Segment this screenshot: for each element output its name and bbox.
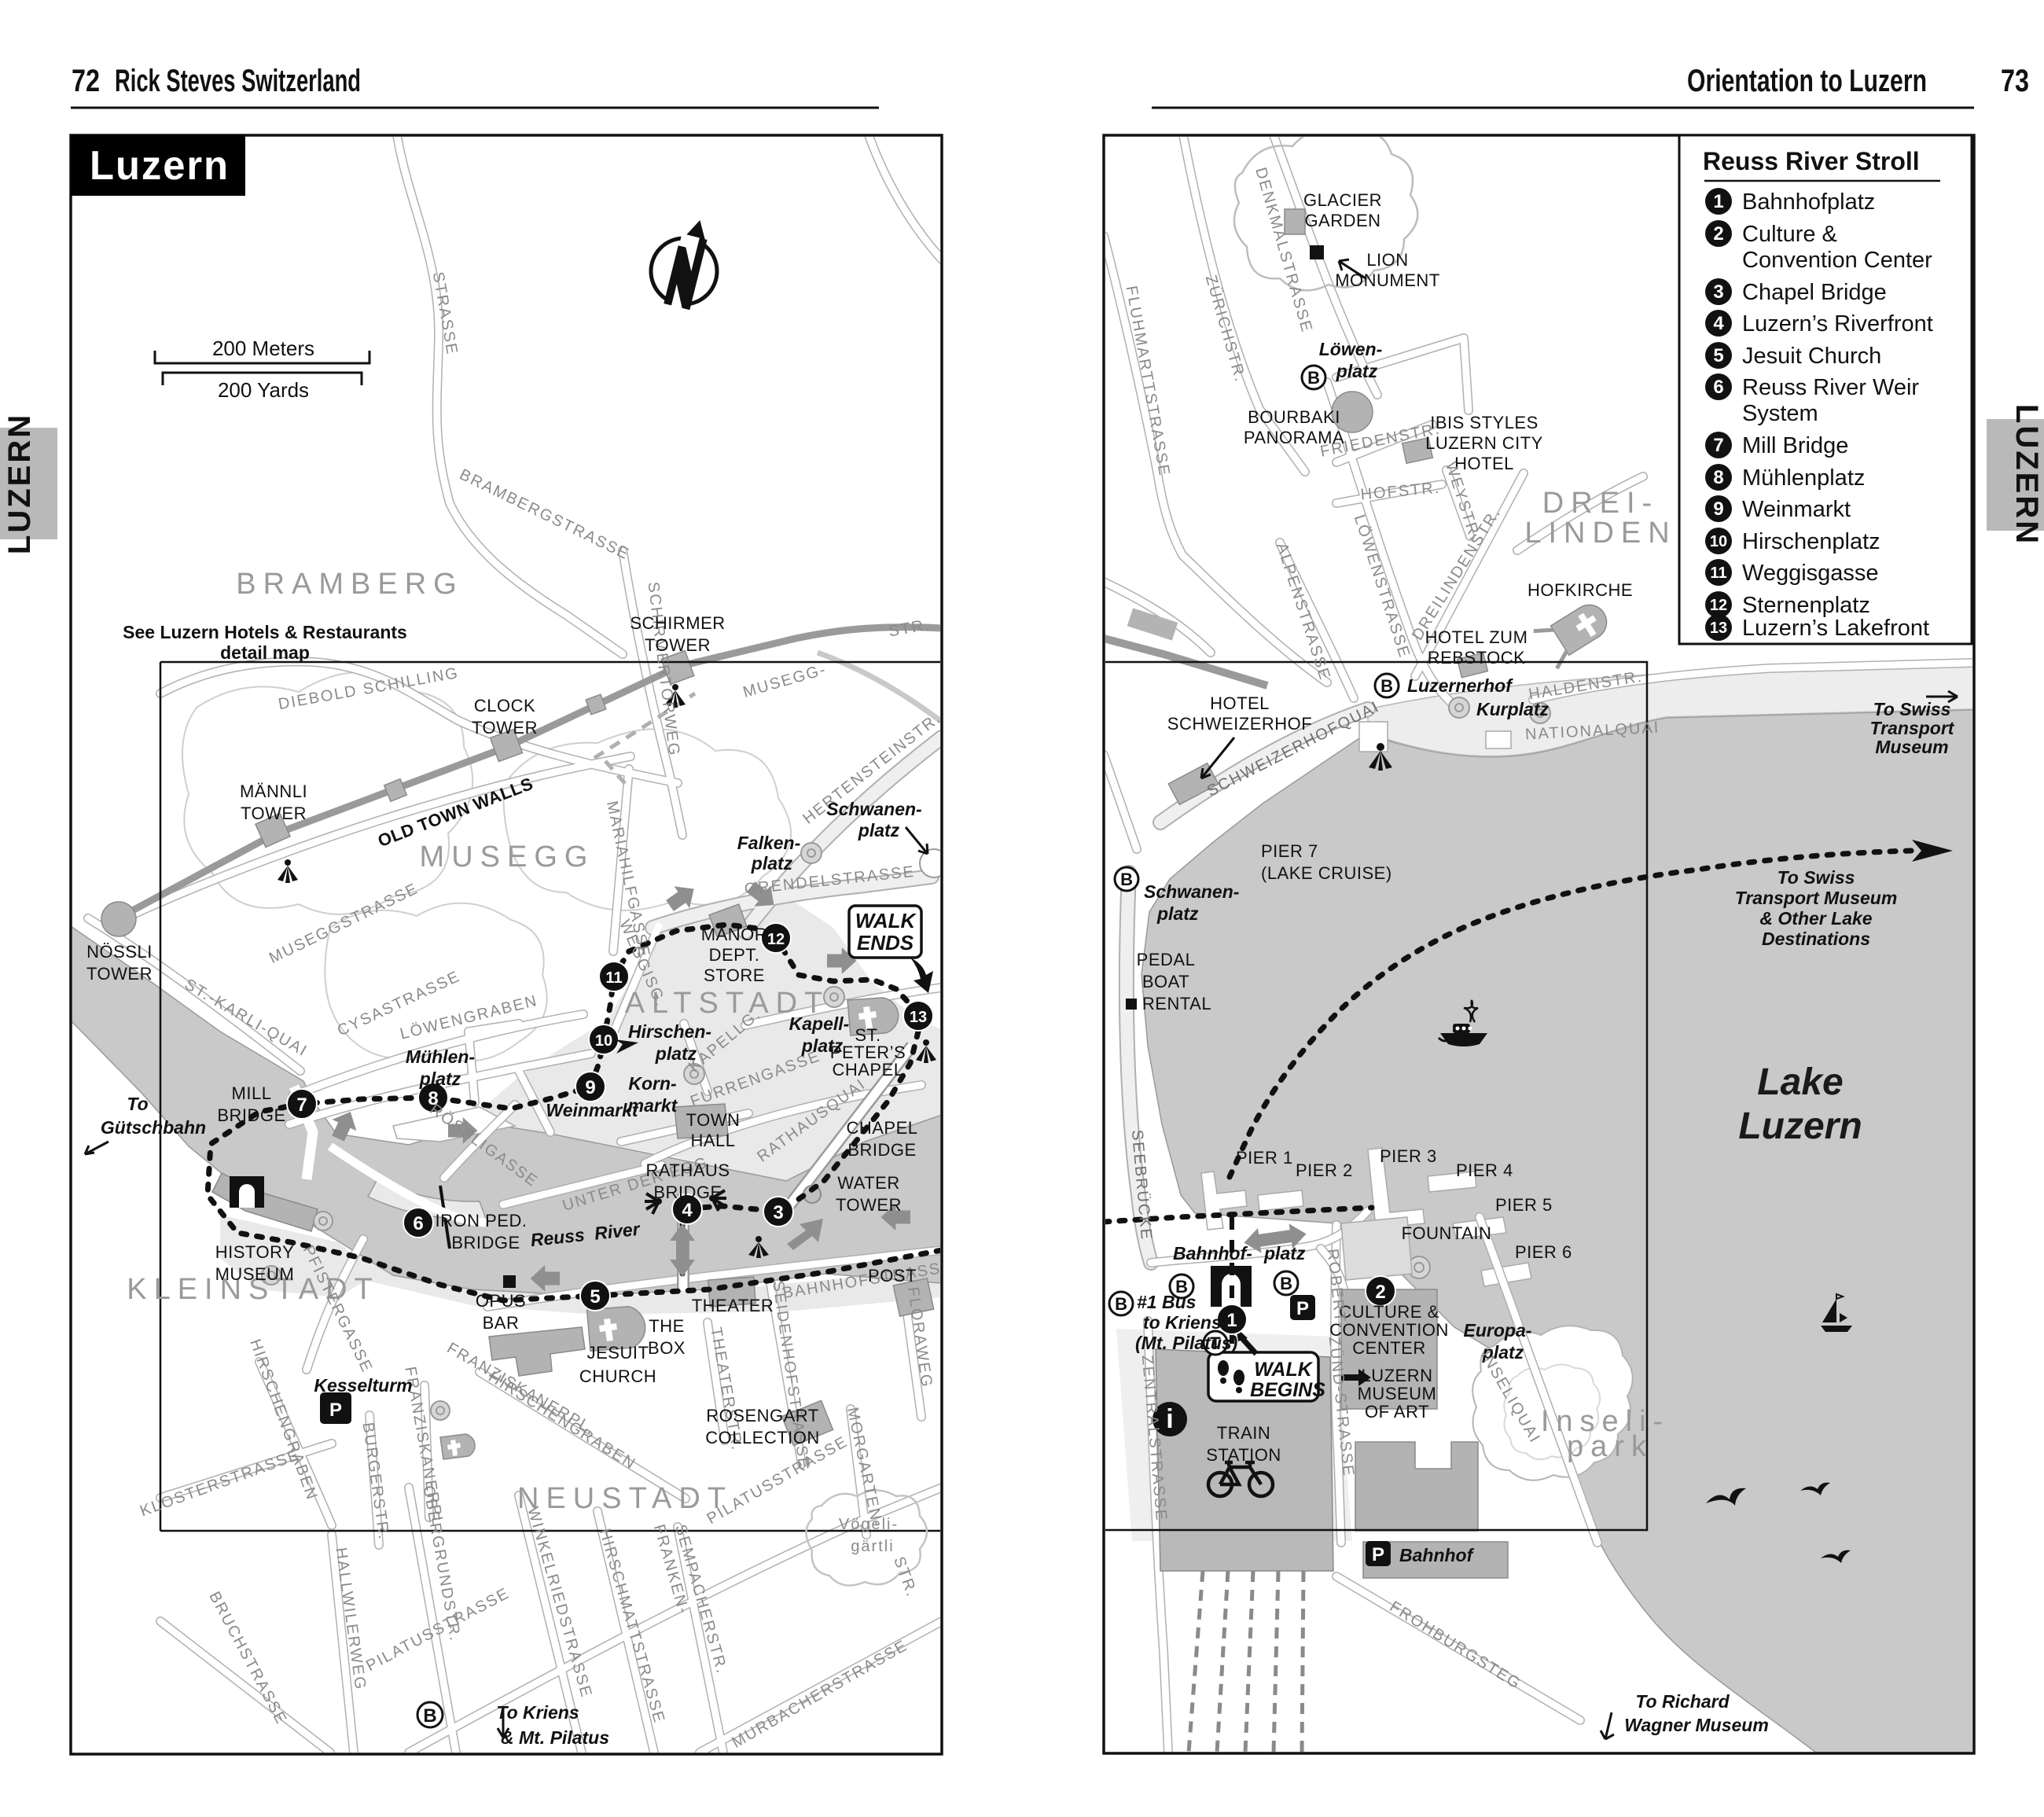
svg-text:Luzern’s Riverfront: Luzern’s Riverfront (1742, 311, 1933, 337)
svg-text:TOWN: TOWN (686, 1110, 741, 1130)
svg-text:Lake: Lake (1757, 1061, 1843, 1103)
svg-text:72: 72 (72, 64, 100, 98)
svg-text:System: System (1742, 401, 1818, 426)
svg-text:Luzern: Luzern (1738, 1105, 1862, 1147)
svg-text:TOWER: TOWER (86, 964, 153, 984)
svg-text:SCHIRMER: SCHIRMER (630, 613, 725, 633)
svg-text:Hirschenplatz: Hirschenplatz (1742, 529, 1880, 554)
svg-text:TOWER: TOWER (836, 1195, 902, 1215)
svg-text:LUZERN: LUZERN (2009, 404, 2044, 546)
svg-text:HOFKIRCHE: HOFKIRCHE (1527, 580, 1633, 600)
svg-text:Kurplatz: Kurplatz (1476, 699, 1550, 719)
svg-text:7: 7 (1713, 435, 1723, 456)
svg-text:CULTURE &: CULTURE & (1339, 1302, 1439, 1322)
svg-text:MANOR: MANOR (701, 925, 767, 944)
svg-text:9: 9 (585, 1077, 595, 1098)
svg-text:B: B (1280, 1274, 1292, 1293)
svg-text:CHAPEL: CHAPEL (832, 1060, 903, 1080)
svg-text:CENTER: CENTER (1352, 1338, 1425, 1358)
svg-text:Korn-: Korn- (628, 1073, 676, 1094)
svg-text:Reuss River Stroll: Reuss River Stroll (1703, 147, 1920, 175)
svg-text:platz: platz (655, 1043, 697, 1064)
svg-text:Museum: Museum (1875, 737, 1948, 757)
svg-text:THEATER: THEATER (692, 1296, 774, 1315)
svg-text:STORE: STORE (704, 966, 765, 985)
svg-text:MUSEUM: MUSEUM (1358, 1384, 1437, 1403)
svg-text:Orientation to Luzern: Orientation to Luzern (1687, 64, 1927, 98)
svg-text:Luzern: Luzern (90, 143, 230, 189)
svg-text:TOWER: TOWER (472, 718, 538, 737)
svg-text:SCHWEIZERHOF: SCHWEIZERHOF (1167, 714, 1312, 734)
svg-text:BRIDGE: BRIDGE (217, 1105, 285, 1125)
svg-text:Transport: Transport (1870, 718, 1955, 738)
svg-text:LUZERN: LUZERN (2, 413, 37, 554)
svg-text:JESUIT: JESUIT (587, 1343, 649, 1363)
svg-text:OF ART: OF ART (1365, 1402, 1429, 1422)
svg-text:TRAIN: TRAIN (1217, 1423, 1271, 1443)
svg-text:Culture &: Culture & (1742, 222, 1837, 247)
svg-text:BOAT: BOAT (1142, 972, 1189, 991)
svg-text:2: 2 (1375, 1282, 1385, 1303)
svg-text:3: 3 (773, 1202, 783, 1223)
svg-text:LION: LION (1366, 250, 1408, 270)
svg-text:Rick Steves Switzerland: Rick Steves Switzerland (115, 64, 361, 98)
svg-text:P: P (329, 1400, 342, 1421)
svg-text:(Mt. Pilatus): (Mt. Pilatus) (1135, 1333, 1237, 1353)
svg-text:13: 13 (1710, 620, 1727, 637)
svg-text:BOX: BOX (648, 1338, 686, 1358)
svg-text:Mühlen-: Mühlen- (406, 1046, 475, 1067)
svg-text:Destinations: Destinations (1762, 929, 1870, 949)
svg-text:To Kriens: To Kriens (496, 1702, 579, 1723)
svg-text:FOUNTAIN: FOUNTAIN (1402, 1223, 1492, 1243)
svg-text:10: 10 (595, 1032, 612, 1050)
svg-text:IBIS STYLES: IBIS STYLES (1430, 413, 1539, 432)
svg-text:PIER 4: PIER 4 (1456, 1160, 1513, 1180)
svg-text:RENTAL: RENTAL (1142, 994, 1211, 1013)
svg-text:platz: platz (751, 853, 793, 874)
svg-text:to Kriens: to Kriens (1143, 1312, 1222, 1333)
svg-text:11: 11 (1710, 565, 1726, 582)
svg-text:PIER 7: PIER 7 (1261, 841, 1318, 861)
svg-text:200 Yards: 200 Yards (218, 378, 309, 402)
svg-text:TOWER: TOWER (241, 804, 307, 823)
svg-text:(LAKE CRUISE): (LAKE CRUISE) (1261, 863, 1392, 883)
svg-text:To Richard: To Richard (1635, 1691, 1730, 1712)
svg-text:ROSENGART: ROSENGART (706, 1406, 818, 1425)
svg-text:4: 4 (1713, 313, 1724, 334)
svg-text:BRIDGE: BRIDGE (847, 1140, 916, 1160)
svg-text:Vögeli-: Vögeli- (839, 1516, 899, 1533)
svg-text:6: 6 (1713, 377, 1723, 398)
svg-text:detail map: detail map (220, 642, 310, 663)
svg-text:Gütschbahn: Gütschbahn (101, 1117, 206, 1138)
svg-text:NÖSSLI: NÖSSLI (86, 942, 153, 962)
svg-text:BOURBAKI: BOURBAKI (1248, 407, 1340, 427)
svg-text:Convention Center: Convention Center (1742, 248, 1932, 273)
svg-text:platz: platz (1263, 1243, 1306, 1263)
svg-text:WALK: WALK (1254, 1359, 1314, 1381)
svg-text:2: 2 (1713, 223, 1723, 245)
svg-text:i: i (1166, 1404, 1173, 1434)
svg-text:6: 6 (413, 1213, 423, 1234)
svg-text:platz: platz (1156, 903, 1199, 924)
svg-text:TOWER: TOWER (645, 635, 711, 655)
svg-text:12: 12 (1710, 597, 1727, 614)
svg-text:THE: THE (649, 1316, 685, 1336)
svg-text:PIER 3: PIER 3 (1380, 1146, 1437, 1166)
svg-text:WATER: WATER (837, 1173, 900, 1193)
svg-text:DEPT.: DEPT. (709, 945, 760, 965)
svg-text:park: park (1567, 1430, 1653, 1463)
svg-text:& Other Lake: & Other Lake (1759, 908, 1872, 929)
svg-text:RATHAUS: RATHAUS (646, 1160, 730, 1180)
svg-text:P: P (1372, 1544, 1384, 1565)
svg-text:BRAMBERG: BRAMBERG (236, 568, 463, 601)
svg-text:13: 13 (910, 1009, 927, 1026)
svg-text:LUZERN: LUZERN (1361, 1366, 1432, 1385)
svg-text:5: 5 (590, 1286, 600, 1308)
svg-text:7: 7 (296, 1094, 307, 1116)
svg-text:Kapell-: Kapell- (789, 1013, 850, 1034)
svg-text:Chapel Bridge: Chapel Bridge (1742, 280, 1887, 305)
svg-text:MONUMENT: MONUMENT (1335, 270, 1440, 290)
svg-text:Reuss River Weir: Reuss River Weir (1742, 375, 1919, 400)
svg-text:HALL: HALL (690, 1131, 735, 1150)
svg-text:LUZERN CITY: LUZERN CITY (1425, 433, 1543, 453)
svg-text:HOTEL: HOTEL (1454, 454, 1514, 473)
svg-text:Mühlenplatz: Mühlenplatz (1742, 465, 1865, 491)
svg-text:8: 8 (1713, 467, 1723, 488)
svg-text:B: B (1307, 368, 1320, 388)
svg-text:POST: POST (868, 1266, 917, 1286)
svg-text:Weinmarkt: Weinmarkt (546, 1100, 639, 1120)
svg-text:MÄNNLI: MÄNNLI (240, 782, 307, 801)
svg-text:OPUS: OPUS (476, 1291, 526, 1311)
svg-text:NEUSTADT: NEUSTADT (517, 1482, 733, 1515)
svg-text:BRIDGE: BRIDGE (451, 1233, 520, 1252)
svg-text:HOTEL: HOTEL (1210, 693, 1270, 713)
svg-text:#1 Bus: #1 Bus (1137, 1292, 1196, 1312)
svg-text:B: B (423, 1705, 436, 1727)
svg-text:PEDAL: PEDAL (1137, 950, 1196, 969)
svg-text:Europa-: Europa- (1464, 1320, 1532, 1341)
svg-text:platz: platz (801, 1035, 844, 1056)
svg-text:Kesselturm: Kesselturm (314, 1375, 412, 1396)
svg-text:gärtli: gärtli (851, 1538, 894, 1555)
svg-text:PIER 2: PIER 2 (1296, 1160, 1353, 1180)
svg-text:Bahnhof-: Bahnhof- (1173, 1243, 1252, 1263)
svg-text:Jesuit Church: Jesuit Church (1742, 344, 1881, 369)
svg-text:Weggisgasse: Weggisgasse (1742, 561, 1879, 586)
svg-text:PIER 6: PIER 6 (1515, 1242, 1572, 1262)
svg-text:REBSTOCK: REBSTOCK (1428, 648, 1526, 668)
svg-text:Schwanen-: Schwanen- (1144, 881, 1239, 902)
svg-text:200 Meters: 200 Meters (212, 337, 314, 360)
svg-text:11: 11 (605, 969, 622, 987)
svg-text:B: B (1380, 676, 1393, 696)
svg-text:ENDS: ENDS (857, 931, 914, 954)
svg-text:Luzern’s Lakefront: Luzern’s Lakefront (1742, 616, 1929, 641)
svg-text:Transport Museum: Transport Museum (1735, 888, 1898, 908)
svg-text:BAR: BAR (483, 1313, 520, 1333)
svg-text:See Luzern Hotels & Restaurant: See Luzern Hotels & Restaurants (123, 622, 407, 642)
svg-text:MILL: MILL (232, 1083, 272, 1103)
svg-text:& Mt. Pilatus: & Mt. Pilatus (501, 1727, 609, 1748)
svg-text:BRIDGE: BRIDGE (653, 1183, 722, 1202)
svg-text:Schwanen-: Schwanen- (826, 799, 921, 819)
svg-text:P: P (1296, 1298, 1309, 1319)
svg-text:PIER 1: PIER 1 (1236, 1148, 1293, 1168)
svg-text:LINDEN: LINDEN (1524, 517, 1676, 550)
svg-text:IRON PED.: IRON PED. (436, 1211, 528, 1230)
svg-text:12: 12 (767, 931, 785, 948)
svg-text:Hirschen-: Hirschen- (628, 1021, 711, 1042)
svg-text:Bahnhofplatz: Bahnhofplatz (1742, 189, 1875, 215)
svg-text:B: B (1115, 1294, 1127, 1314)
svg-text:platz: platz (858, 820, 900, 840)
svg-text:platz: platz (419, 1068, 461, 1089)
svg-text:4: 4 (682, 1200, 693, 1221)
svg-text:Weinmarkt: Weinmarkt (1742, 497, 1851, 522)
svg-text:73: 73 (2001, 64, 2029, 98)
svg-text:1: 1 (1713, 191, 1723, 212)
svg-text:platz: platz (1336, 361, 1378, 381)
svg-text:9: 9 (1713, 498, 1723, 520)
svg-text:HISTORY: HISTORY (215, 1242, 295, 1262)
svg-text:Luzernerhof: Luzernerhof (1407, 675, 1513, 696)
svg-text:10: 10 (1710, 533, 1727, 550)
svg-text:GLACIER: GLACIER (1303, 190, 1382, 210)
svg-text:To Swiss: To Swiss (1873, 699, 1951, 719)
svg-text:Wagner Museum: Wagner Museum (1624, 1715, 1769, 1735)
svg-text:Löwen-: Löwen- (1319, 339, 1383, 359)
svg-text:STATION: STATION (1206, 1445, 1281, 1465)
svg-text:CHAPEL: CHAPEL (846, 1118, 917, 1138)
svg-text:GARDEN: GARDEN (1304, 211, 1380, 230)
svg-text:5: 5 (1713, 345, 1723, 366)
svg-text:BEGINS: BEGINS (1250, 1379, 1325, 1401)
svg-text:Falken-: Falken- (737, 833, 801, 853)
svg-text:COLLECTION: COLLECTION (705, 1428, 820, 1447)
svg-text:PIER 5: PIER 5 (1495, 1195, 1553, 1215)
svg-text:HOTEL ZUM: HOTEL ZUM (1425, 627, 1528, 647)
svg-text:CLOCK: CLOCK (474, 696, 535, 715)
svg-text:WALK: WALK (855, 909, 917, 932)
svg-text:DREI-: DREI- (1542, 487, 1659, 520)
svg-text:Mill Bridge: Mill Bridge (1742, 433, 1848, 458)
svg-text:Bahnhof: Bahnhof (1399, 1545, 1475, 1565)
svg-text:MUSEGG: MUSEGG (420, 840, 595, 874)
svg-text:B: B (1120, 870, 1133, 889)
svg-text:To Swiss: To Swiss (1777, 867, 1855, 888)
svg-text:3: 3 (1713, 281, 1723, 303)
svg-text:CHURCH: CHURCH (579, 1366, 656, 1386)
svg-text:Sternenplatz: Sternenplatz (1742, 593, 1870, 618)
svg-text:1: 1 (1226, 1310, 1237, 1331)
svg-text:MUSEUM: MUSEUM (215, 1264, 295, 1284)
svg-text:To: To (127, 1094, 148, 1114)
